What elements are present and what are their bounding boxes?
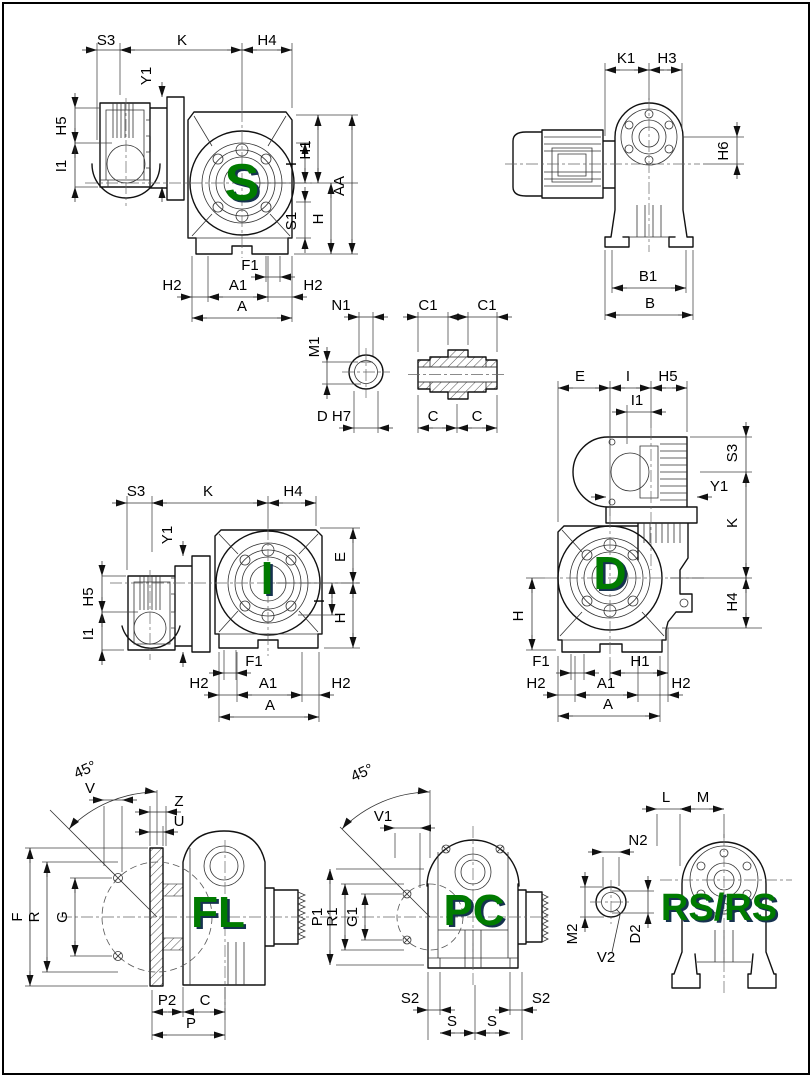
fl-spigot-hatch-bottom [163, 938, 183, 950]
pc-arc-arrow-right [420, 791, 429, 792]
side-outline [513, 103, 693, 247]
side-extension-lines [605, 63, 744, 320]
dim-label: V2 [597, 949, 615, 966]
dim-label: Y1 [159, 526, 176, 544]
dim-label: H2 [189, 675, 208, 692]
dim-label: H4 [724, 592, 741, 611]
dim-label: I1 [53, 160, 70, 173]
technical-drawing: S3KH4Y1H5I1IS1H1HAAF1H2A1H2AK1H3H6B1BN1M… [0, 0, 812, 1079]
dim-label: AA [331, 176, 348, 196]
dim-label: H6 [715, 141, 732, 160]
dim-label: C [200, 992, 211, 1009]
dim-label: H2 [162, 277, 181, 294]
d-extension-lines [526, 381, 762, 722]
dim-label: S2 [401, 990, 419, 1007]
dim-label: H [310, 214, 327, 225]
dim-label: F1 [532, 653, 550, 670]
dim-label: H2 [671, 675, 690, 692]
fl-arc-arrow-left [70, 822, 75, 829]
dim-label: H5 [658, 368, 677, 385]
dim-label: E [575, 368, 585, 385]
dim-label: 45° [348, 761, 376, 786]
s-centerlines [85, 98, 312, 258]
dim-label: M2 [564, 924, 581, 945]
dim-label: H5 [80, 587, 97, 606]
view-letter-i: I [261, 552, 274, 604]
dim-label: C [428, 408, 439, 425]
dim-label: A1 [597, 675, 615, 692]
dim-label: E [332, 552, 349, 562]
dim-label: K1 [617, 50, 635, 67]
dim-label: Y1 [138, 67, 155, 85]
dim-label: B [645, 295, 655, 312]
s-motor-fins [100, 103, 292, 238]
dim-label: I1 [80, 628, 97, 641]
side-motor-fins [544, 137, 675, 237]
dim-label: R1 [324, 907, 341, 926]
dim-label: I1 [631, 392, 644, 409]
dim-label: I [311, 599, 328, 603]
dim-label: 45° [71, 758, 99, 783]
dim-label: P [186, 1015, 196, 1032]
d-centerlines [545, 428, 705, 660]
dim-label: B1 [639, 268, 657, 285]
dim-label: Z [174, 793, 183, 810]
dim-label: K [724, 518, 741, 528]
dim-label: A [603, 696, 613, 713]
dim-label: S3 [127, 483, 145, 500]
dim-label: S3 [97, 32, 115, 49]
dim-label: G1 [344, 907, 361, 927]
dim-label: F1 [245, 653, 263, 670]
fl-spigot-hatch-top [163, 884, 183, 896]
dim-label: H4 [283, 483, 302, 500]
dim-label: G [54, 911, 71, 923]
dim-label: C1 [418, 297, 437, 314]
dim-label: N1 [331, 297, 350, 314]
dim-label: P2 [158, 992, 176, 1009]
dim-label: A [265, 697, 275, 714]
dim-label: C [472, 408, 483, 425]
dim-label: C1 [477, 297, 496, 314]
pc-centerlines [320, 826, 548, 985]
view-letter-rs: RS/RS [661, 887, 777, 929]
dim-label: H2 [303, 277, 322, 294]
dim-label: D H7 [317, 408, 351, 425]
dim-label: H [510, 611, 527, 622]
dim-label: D2 [627, 924, 644, 943]
dim-label: H2 [526, 675, 545, 692]
dim-label: S1 [283, 212, 300, 230]
dim-label: S [487, 1013, 497, 1030]
dim-label: L [662, 789, 670, 806]
dim-label: A [237, 298, 247, 315]
detail-sleeve-section [408, 312, 507, 433]
dim-label: A1 [229, 277, 247, 294]
view-side-gearmotor [505, 63, 744, 320]
d-ear-bolt-circle [680, 599, 688, 607]
dim-label: H4 [257, 32, 276, 49]
view-letter-d: D [593, 547, 626, 599]
dim-label: S2 [532, 990, 550, 1007]
dim-label: N2 [628, 832, 647, 849]
dim-label: H [332, 613, 349, 624]
dim-label: Y1 [710, 478, 728, 495]
dim-label: V1 [374, 808, 392, 825]
fl-arc-arrow-right [147, 791, 156, 792]
fl-body-details [50, 810, 305, 985]
dim-label: R [26, 911, 43, 922]
d-fan-cover-circle [611, 453, 649, 491]
dim-label: I [626, 368, 630, 385]
d-motor-fins [558, 444, 687, 640]
dim-label: I [283, 162, 300, 166]
dim-label: M [697, 789, 710, 806]
view-d-gearmotor [526, 381, 762, 722]
dim-label: V [85, 780, 95, 797]
dim-label: S3 [724, 444, 741, 462]
dim-label: F [9, 912, 26, 921]
view-letter-fl: FL [191, 888, 245, 937]
dim-label: H1 [297, 140, 314, 159]
view-letter-pc: PC [443, 886, 504, 935]
dim-label: H3 [657, 50, 676, 67]
dim-label: K [177, 32, 187, 49]
dim-label: A1 [259, 675, 277, 692]
dim-label: M1 [306, 337, 323, 358]
fl-45deg-arc [69, 792, 157, 829]
dim-label: H5 [53, 116, 70, 135]
dim-label: F1 [241, 257, 259, 274]
fl-input-circle-inner [210, 852, 238, 880]
fl-centerlines [60, 840, 310, 1020]
view-i-gearmotor [102, 496, 360, 722]
pc-arc-arrow-left [343, 822, 348, 829]
drawing-page: S3KH4Y1H5I1IS1H1HAAF1H2A1H2AK1H3H6B1BN1M… [0, 0, 812, 1079]
dim-label: U [174, 813, 185, 830]
dim-label: H1 [630, 653, 649, 670]
dim-label: S [447, 1013, 457, 1030]
view-letter-s: S [225, 154, 260, 212]
dim-label: K [203, 483, 213, 500]
dim-label: H2 [331, 675, 350, 692]
